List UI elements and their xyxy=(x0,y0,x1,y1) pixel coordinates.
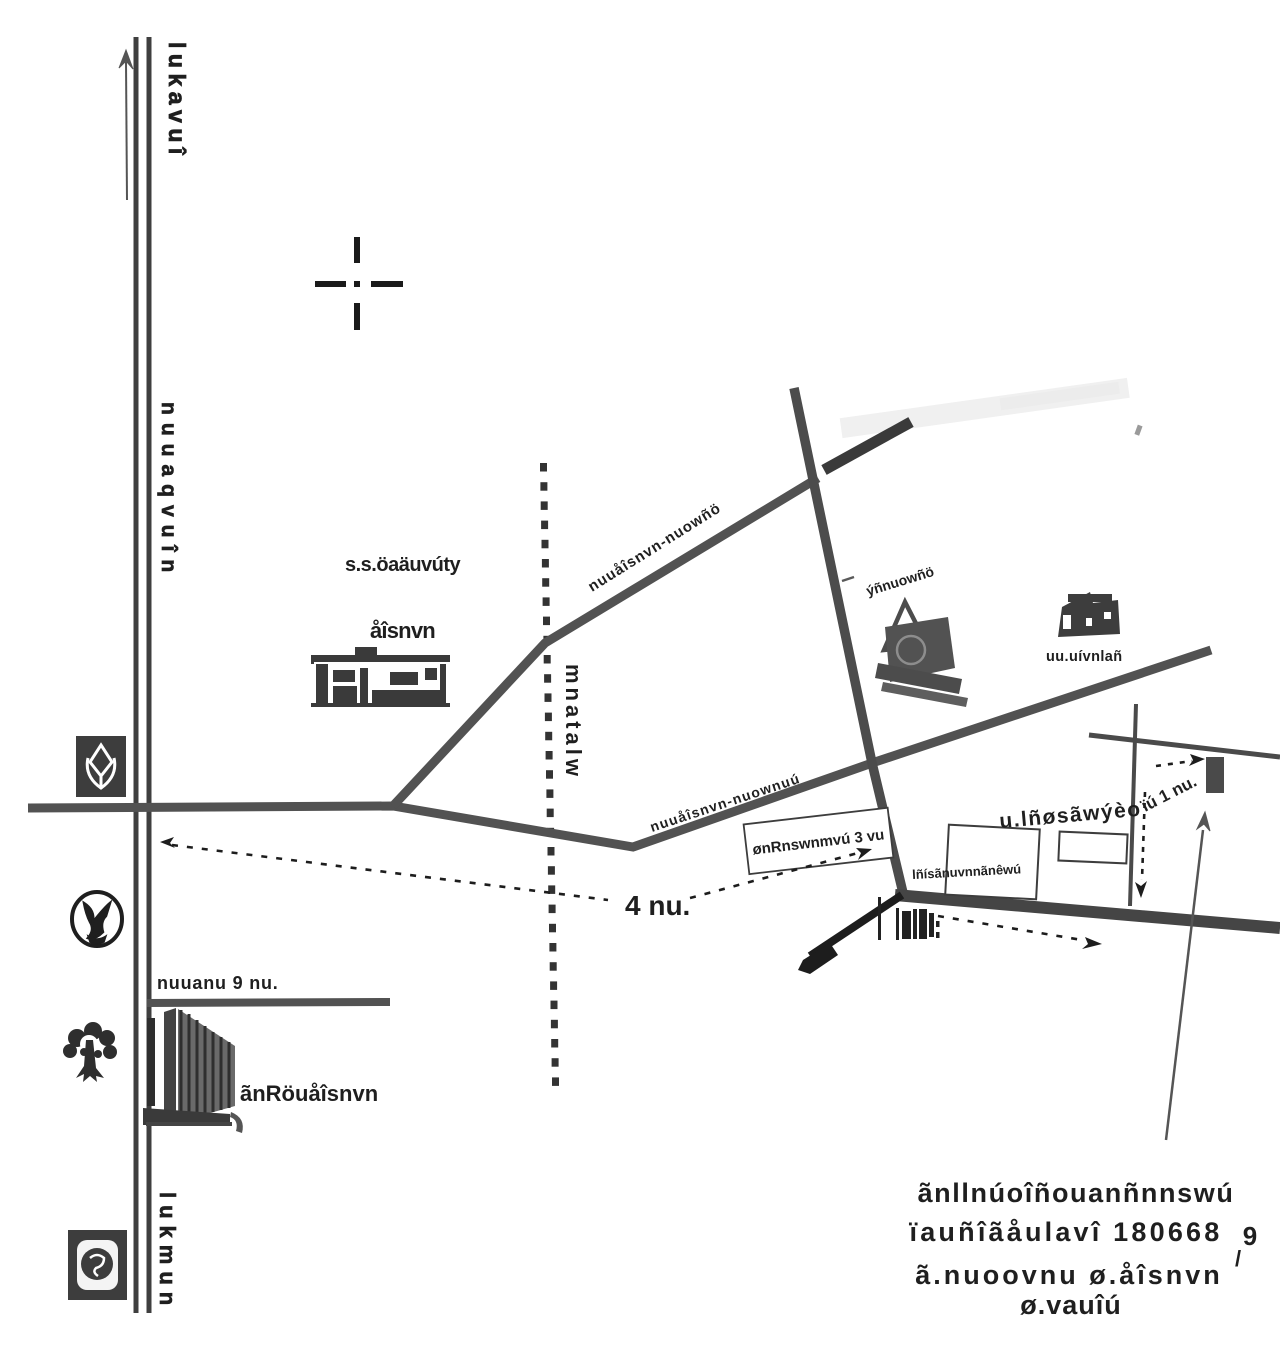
svg-text:4 nu.: 4 nu. xyxy=(625,890,690,921)
svg-text:nuuanu 9 nu.: nuuanu 9 nu. xyxy=(157,973,279,993)
svg-text:u.lñøsãwýèo: u.lñøsãwýèo xyxy=(998,798,1142,833)
svg-text:ïú 1 nu.: ïú 1 nu. xyxy=(1137,772,1200,816)
svg-text:ýñnuowñö: ýñnuowñö xyxy=(864,563,936,599)
svg-text:ïauñîãåulavî 180668: ïauñîãåulavî 180668 xyxy=(909,1217,1223,1247)
svg-text:s.s.öaäuvúty: s.s.öaäuvúty xyxy=(345,554,462,576)
svg-text:ø.vauîú: ø.vauîú xyxy=(1020,1290,1122,1320)
svg-text:lukmun: lukmun xyxy=(155,1192,180,1312)
svg-text:ãnllnúoîñouanñnnswú: ãnllnúoîñouanñnnswú xyxy=(918,1178,1235,1208)
svg-text:uu.uívnlañ: uu.uívnlañ xyxy=(1046,649,1123,665)
svg-text:lukavuî: lukavuî xyxy=(164,42,190,160)
svg-text:/: / xyxy=(1235,1246,1243,1271)
svg-text:9: 9 xyxy=(1243,1221,1259,1251)
svg-text:ãnRöuåîsnvn: ãnRöuåîsnvn xyxy=(240,1081,378,1106)
svg-text:åîsnvn: åîsnvn xyxy=(370,618,435,643)
svg-text:mnatalw: mnatalw xyxy=(561,664,586,780)
svg-text:ã.nuoovnu ø.åîsnvn: ã.nuoovnu ø.åîsnvn xyxy=(915,1260,1223,1290)
svg-text:nuuaqvuîn: nuuaqvuîn xyxy=(157,402,180,580)
